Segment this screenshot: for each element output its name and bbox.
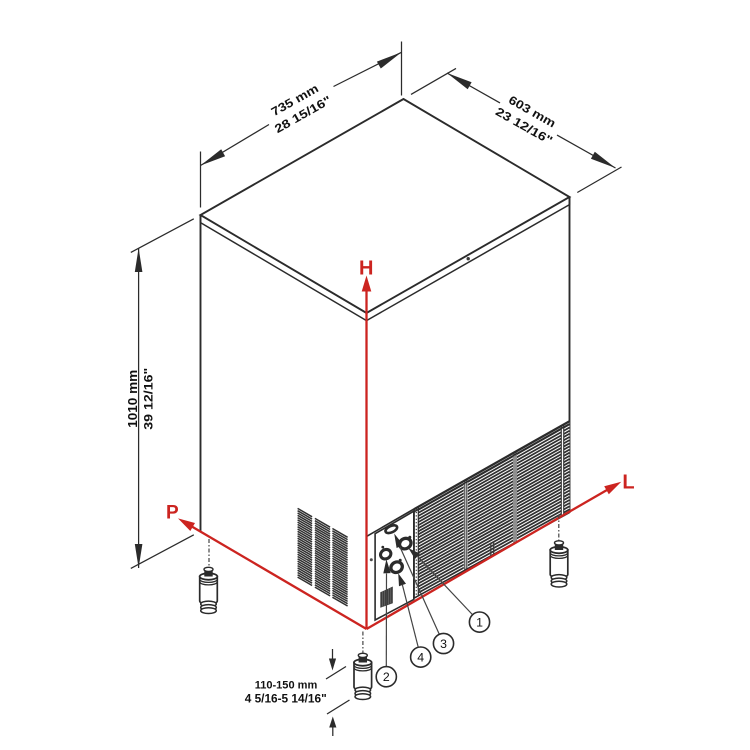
svg-text:2: 2 [383, 670, 390, 684]
svg-text:4: 4 [417, 651, 424, 665]
svg-text:P: P [166, 503, 179, 524]
svg-text:L: L [622, 471, 634, 493]
svg-text:110-150 mm: 110-150 mm [255, 679, 318, 691]
svg-text:1010 mm: 1010 mm [125, 370, 140, 428]
svg-text:39 12/16": 39 12/16" [142, 368, 156, 430]
svg-text:4 5/16-5 14/16": 4 5/16-5 14/16" [245, 692, 327, 706]
svg-text:H: H [359, 257, 373, 279]
svg-text:1: 1 [476, 616, 483, 630]
svg-text:3: 3 [440, 637, 447, 651]
